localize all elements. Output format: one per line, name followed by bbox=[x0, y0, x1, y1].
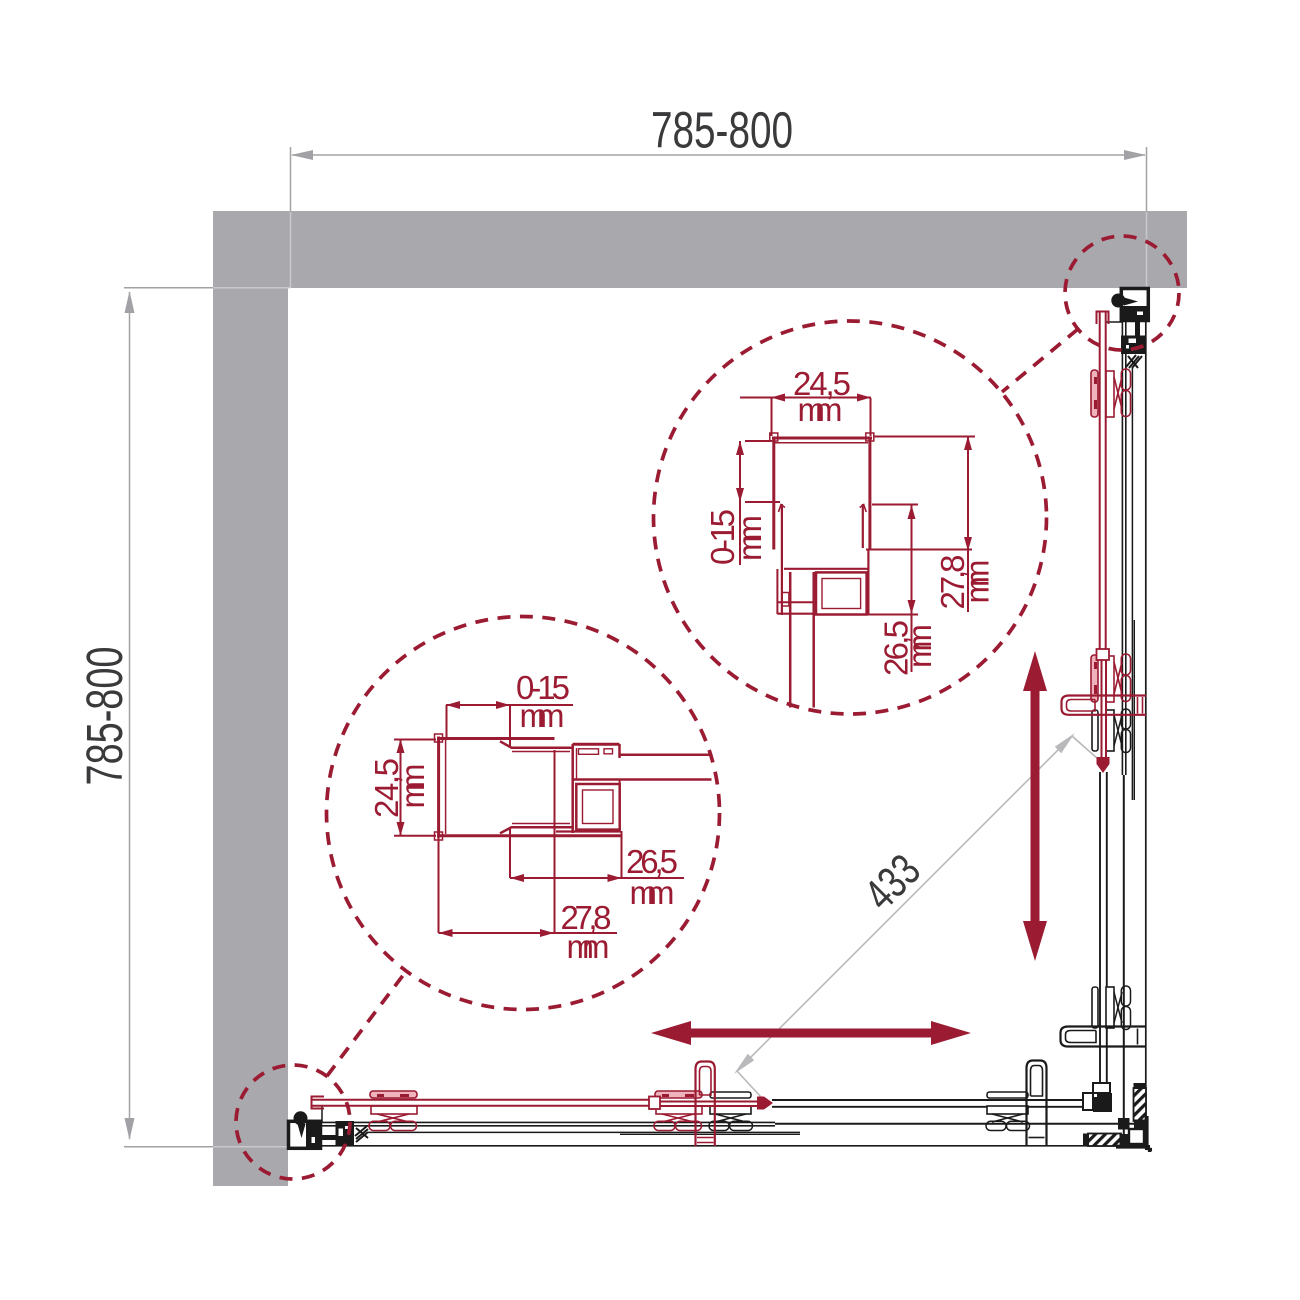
svg-text:mm: mm bbox=[959, 560, 996, 604]
svg-text:mm: mm bbox=[394, 764, 431, 809]
svg-text:785-800: 785-800 bbox=[651, 102, 793, 159]
svg-text:mm: mm bbox=[901, 624, 938, 668]
svg-text:mm: mm bbox=[630, 874, 675, 911]
svg-text:mm: mm bbox=[798, 391, 843, 428]
svg-text:785-800: 785-800 bbox=[76, 647, 133, 786]
svg-text:mm: mm bbox=[520, 697, 565, 734]
svg-text:mm: mm bbox=[731, 515, 768, 561]
svg-text:mm: mm bbox=[567, 928, 610, 965]
